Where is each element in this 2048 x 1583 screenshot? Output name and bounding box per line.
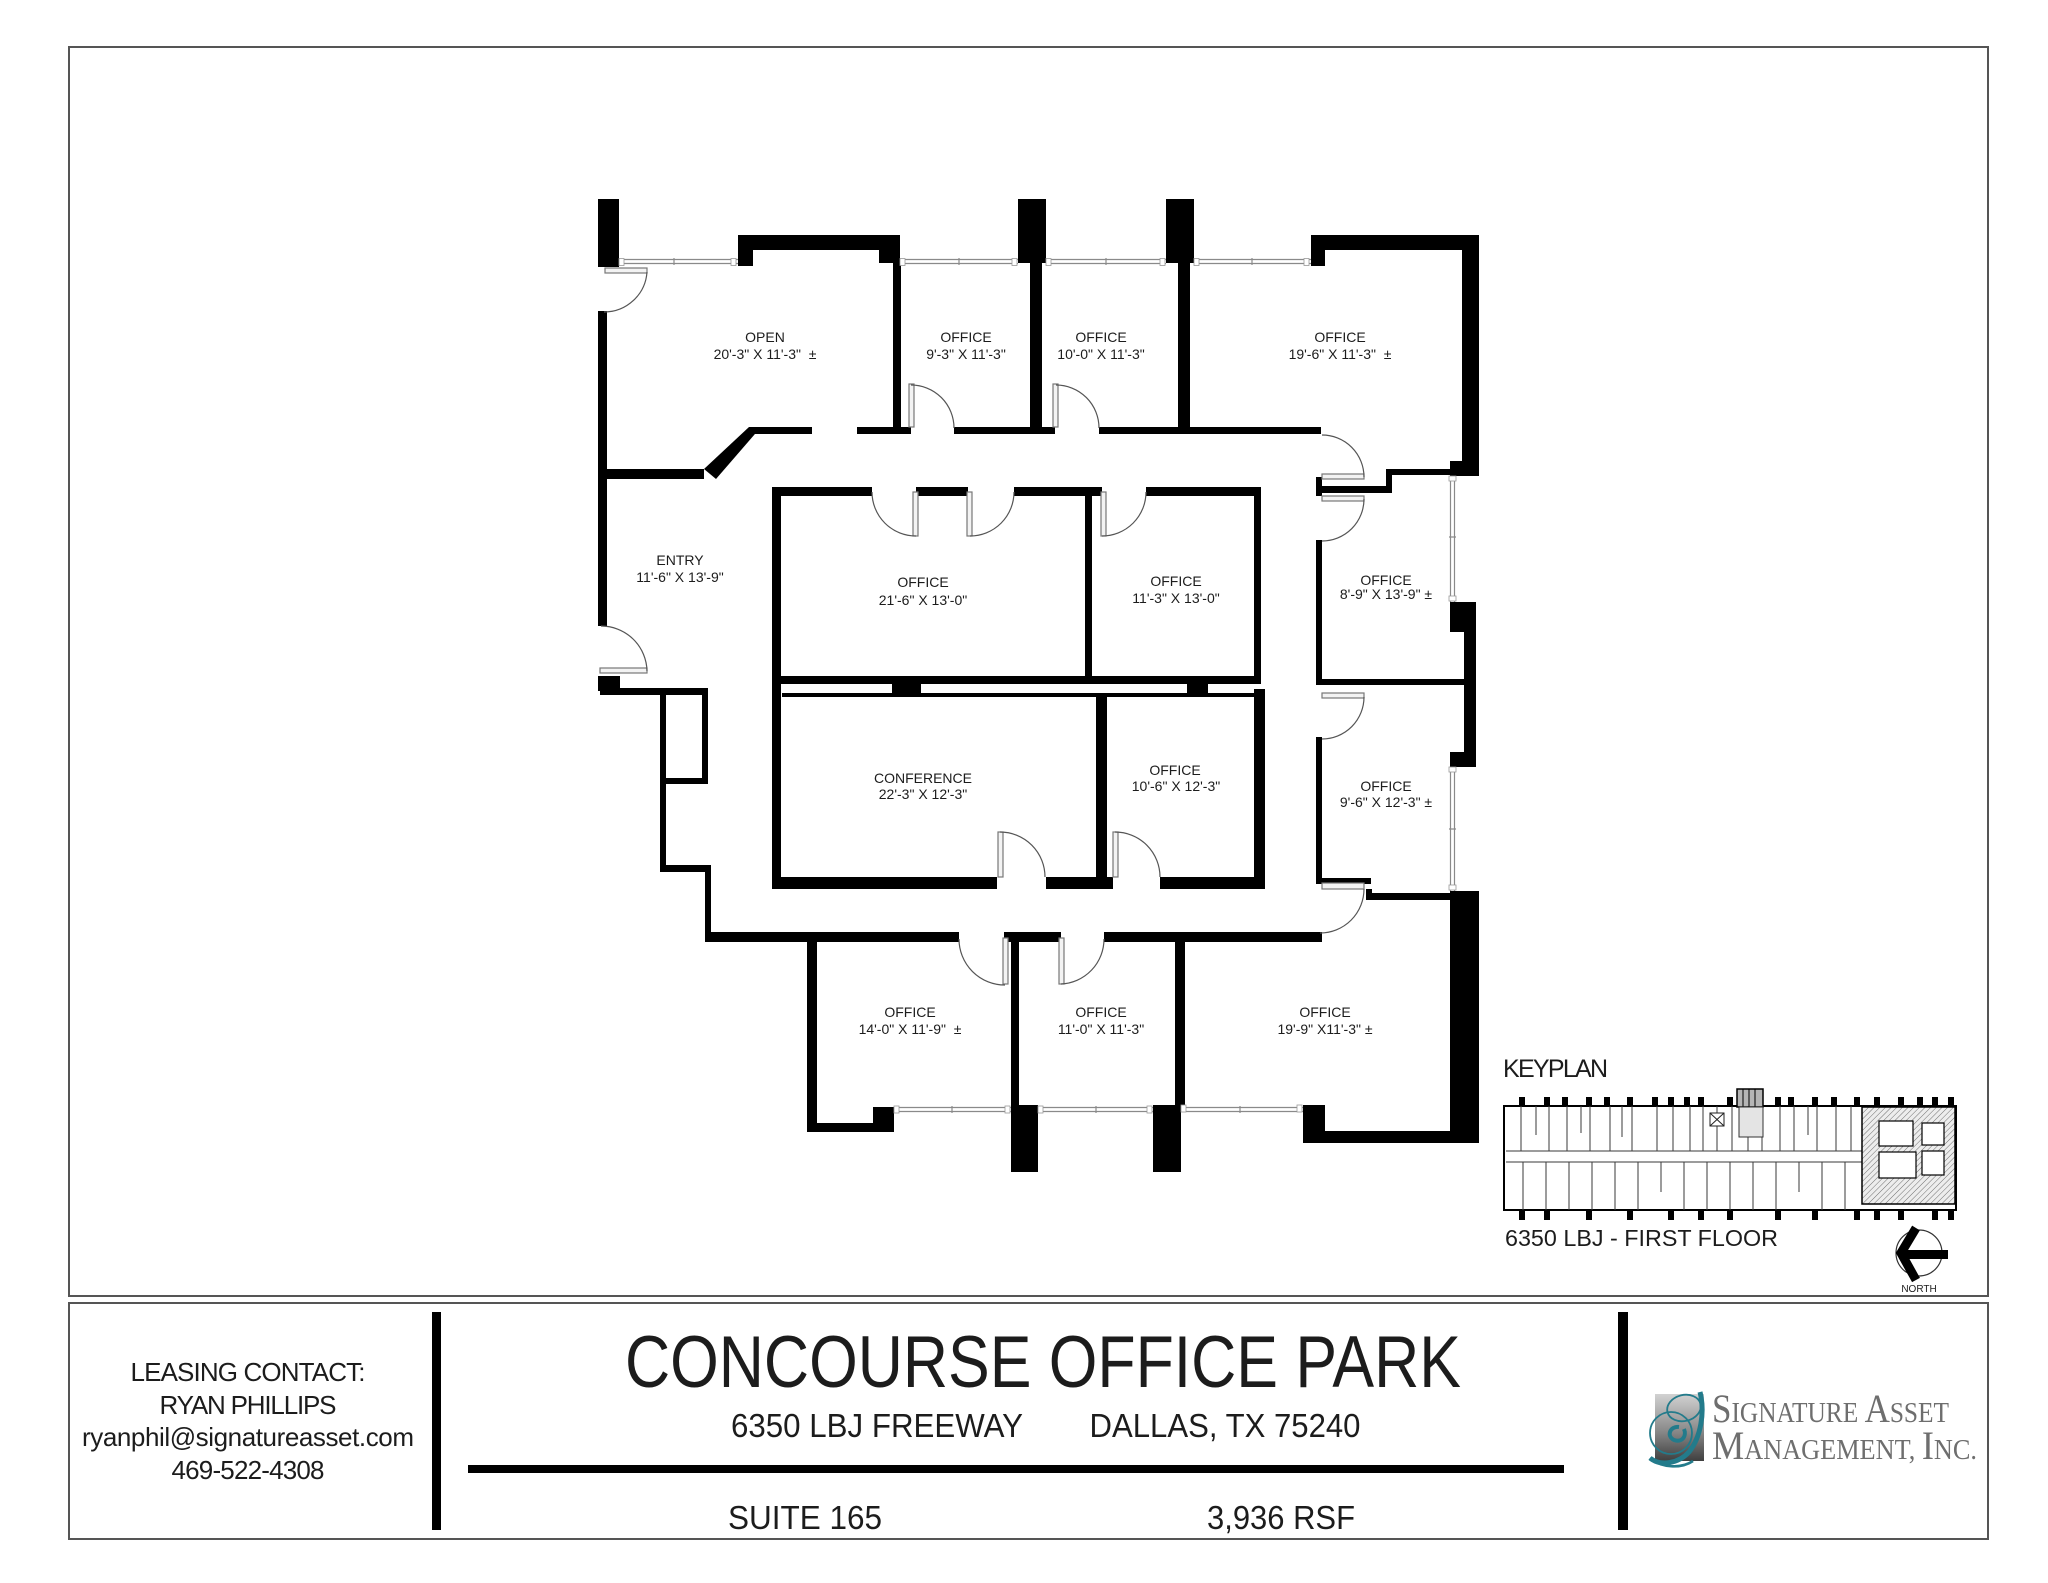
svg-text:OFFICE: OFFICE bbox=[1150, 573, 1201, 589]
svg-text:3,936 RSF: 3,936 RSF bbox=[1207, 1499, 1355, 1536]
svg-text:OFFICE: OFFICE bbox=[1075, 329, 1126, 345]
svg-text:19'-9" X11'-3" ±: 19'-9" X11'-3" ± bbox=[1277, 1021, 1372, 1037]
svg-text:OFFICE: OFFICE bbox=[884, 1004, 935, 1020]
svg-text:20'-3" X 11'-3" ±: 20'-3" X 11'-3" ± bbox=[714, 346, 817, 362]
svg-text:OFFICE: OFFICE bbox=[897, 574, 948, 590]
svg-text:CONFERENCE: CONFERENCE bbox=[874, 770, 972, 786]
svg-text:OPEN: OPEN bbox=[745, 329, 785, 345]
svg-text:RYAN PHILLIPS: RYAN PHILLIPS bbox=[160, 1390, 337, 1420]
svg-text:OFFICE: OFFICE bbox=[940, 329, 991, 345]
svg-text:9'-6" X 12'-3" ±: 9'-6" X 12'-3" ± bbox=[1340, 794, 1433, 810]
svg-text:OFFICE: OFFICE bbox=[1299, 1004, 1350, 1020]
svg-text:KEYPLAN: KEYPLAN bbox=[1503, 1055, 1608, 1083]
svg-text:CONCOURSE OFFICE PARK: CONCOURSE OFFICE PARK bbox=[625, 1322, 1461, 1403]
svg-text:OFFICE: OFFICE bbox=[1149, 762, 1200, 778]
svg-text:10'-6" X 12'-3": 10'-6" X 12'-3" bbox=[1132, 778, 1220, 794]
svg-text:LEASING CONTACT:: LEASING CONTACT: bbox=[131, 1357, 366, 1387]
svg-text:11'-0" X 11'-3": 11'-0" X 11'-3" bbox=[1058, 1021, 1144, 1037]
svg-text:ENTRY: ENTRY bbox=[656, 552, 704, 568]
svg-text:19'-6" X 11'-3" ±: 19'-6" X 11'-3" ± bbox=[1289, 346, 1392, 362]
svg-text:NORTH: NORTH bbox=[1901, 1284, 1936, 1295]
svg-text:OFFICE: OFFICE bbox=[1314, 329, 1365, 345]
svg-text:469-522-4308: 469-522-4308 bbox=[172, 1455, 325, 1485]
svg-text:6350 LBJ FREEWAY: 6350 LBJ FREEWAY bbox=[731, 1407, 1023, 1444]
svg-text:8'-9" X 13'-9" ±: 8'-9" X 13'-9" ± bbox=[1340, 586, 1433, 602]
svg-text:DALLAS, TX 75240: DALLAS, TX 75240 bbox=[1090, 1407, 1361, 1444]
svg-text:21'-6" X 13'-0": 21'-6" X 13'-0" bbox=[879, 592, 967, 608]
svg-text:6350 LBJ - FIRST FLOOR: 6350 LBJ - FIRST FLOOR bbox=[1505, 1225, 1778, 1251]
svg-text:OFFICE: OFFICE bbox=[1360, 778, 1411, 794]
svg-text:11'-3" X 13'-0": 11'-3" X 13'-0" bbox=[1132, 590, 1219, 606]
svg-text:SUITE 165: SUITE 165 bbox=[728, 1499, 882, 1536]
svg-text:14'-0" X 11'-9" ±: 14'-0" X 11'-9" ± bbox=[859, 1021, 962, 1037]
svg-text:ryanphil@signatureasset.com: ryanphil@signatureasset.com bbox=[82, 1422, 414, 1452]
svg-text:9'-3" X 11'-3": 9'-3" X 11'-3" bbox=[926, 346, 1006, 362]
svg-text:OFFICE: OFFICE bbox=[1075, 1004, 1126, 1020]
svg-text:22'-3" X 12'-3": 22'-3" X 12'-3" bbox=[879, 786, 967, 802]
svg-text:10'-0" X 11'-3": 10'-0" X 11'-3" bbox=[1057, 346, 1144, 362]
svg-text:11'-6" X 13'-9": 11'-6" X 13'-9" bbox=[636, 569, 723, 585]
